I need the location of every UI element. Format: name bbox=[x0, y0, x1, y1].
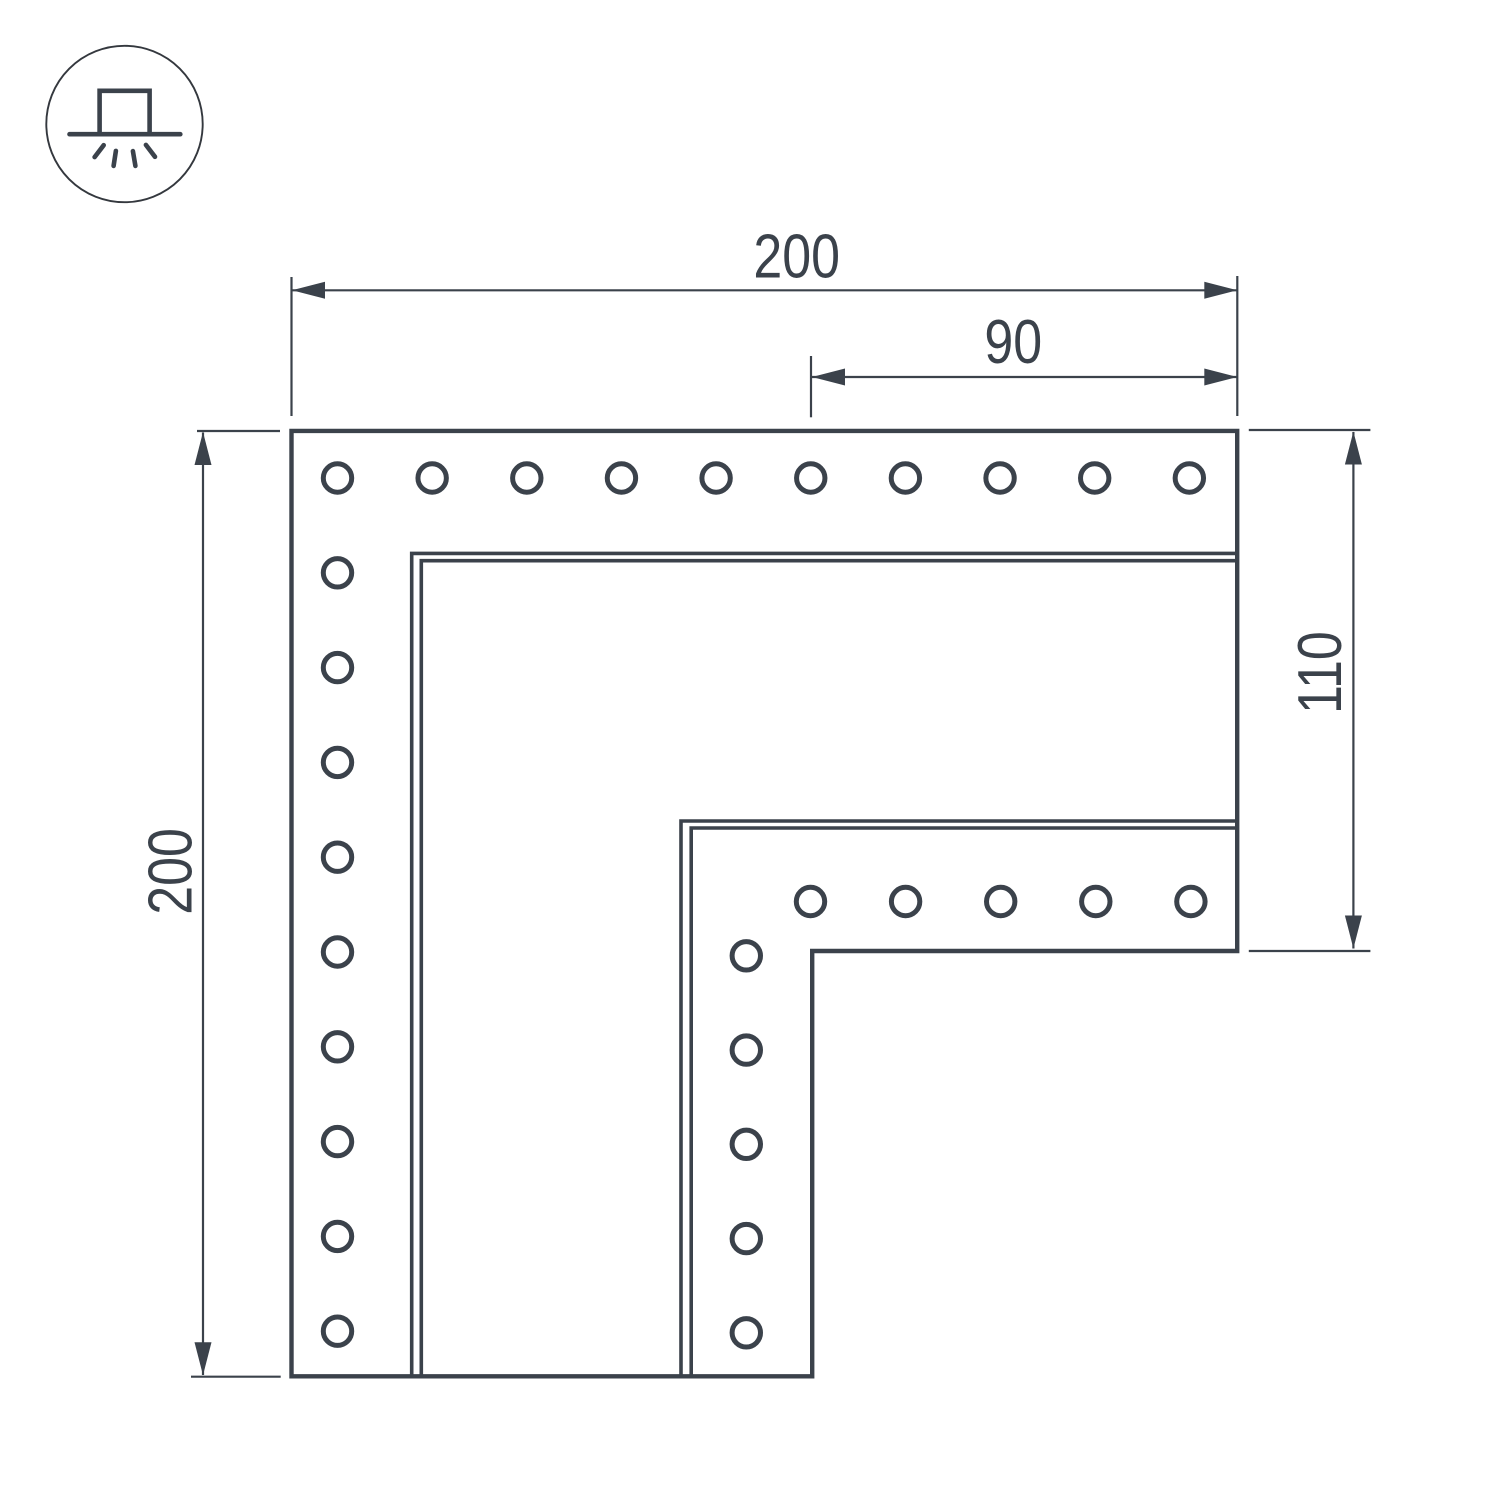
svg-text:90: 90 bbox=[984, 308, 1042, 377]
svg-text:110: 110 bbox=[1286, 631, 1355, 714]
svg-text:200: 200 bbox=[136, 828, 205, 915]
svg-text:200: 200 bbox=[753, 222, 840, 291]
